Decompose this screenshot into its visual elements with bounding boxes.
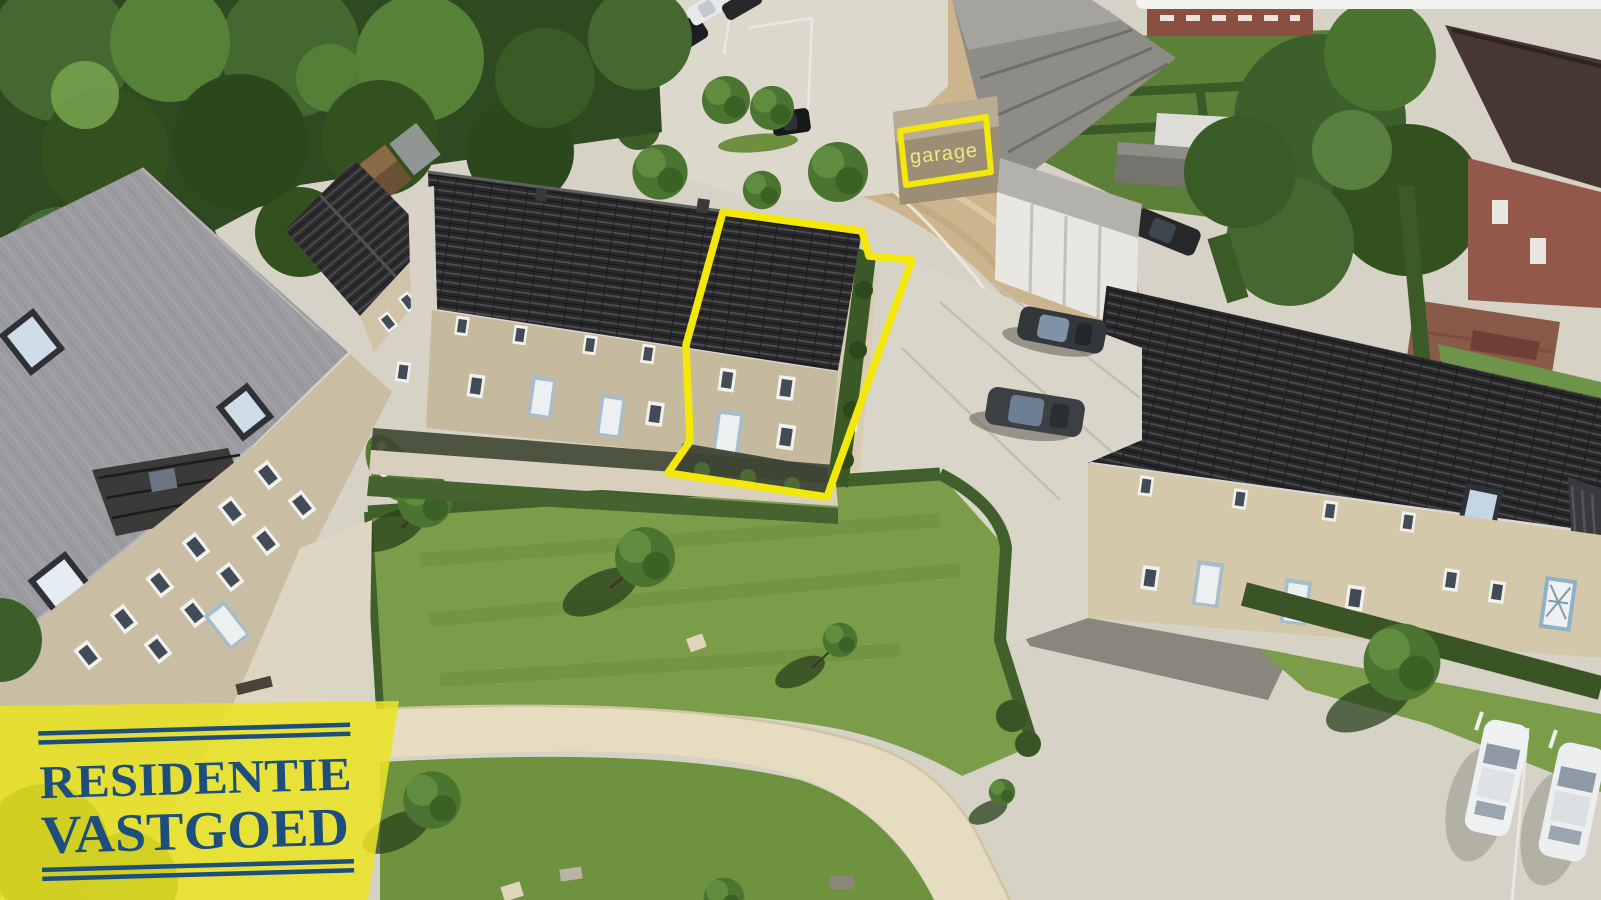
scene-canvas: garage RESIDENTIE VASTGOED (0, 0, 1601, 900)
street-tree (743, 171, 781, 209)
street-tree (808, 142, 868, 202)
birch-tree (51, 61, 119, 129)
logo-line2: VASTGOED (40, 797, 350, 866)
chimney (535, 187, 548, 201)
agency-logo: RESIDENTIE VASTGOED (0, 701, 399, 900)
street-tree (632, 144, 687, 199)
overexposed-roof-strip (1136, 0, 1601, 9)
chimney (696, 198, 710, 214)
drain (830, 876, 854, 889)
aerial-photo: garage RESIDENTIE VASTGOED (0, 0, 1601, 900)
right-lawn-tree (1364, 624, 1441, 701)
